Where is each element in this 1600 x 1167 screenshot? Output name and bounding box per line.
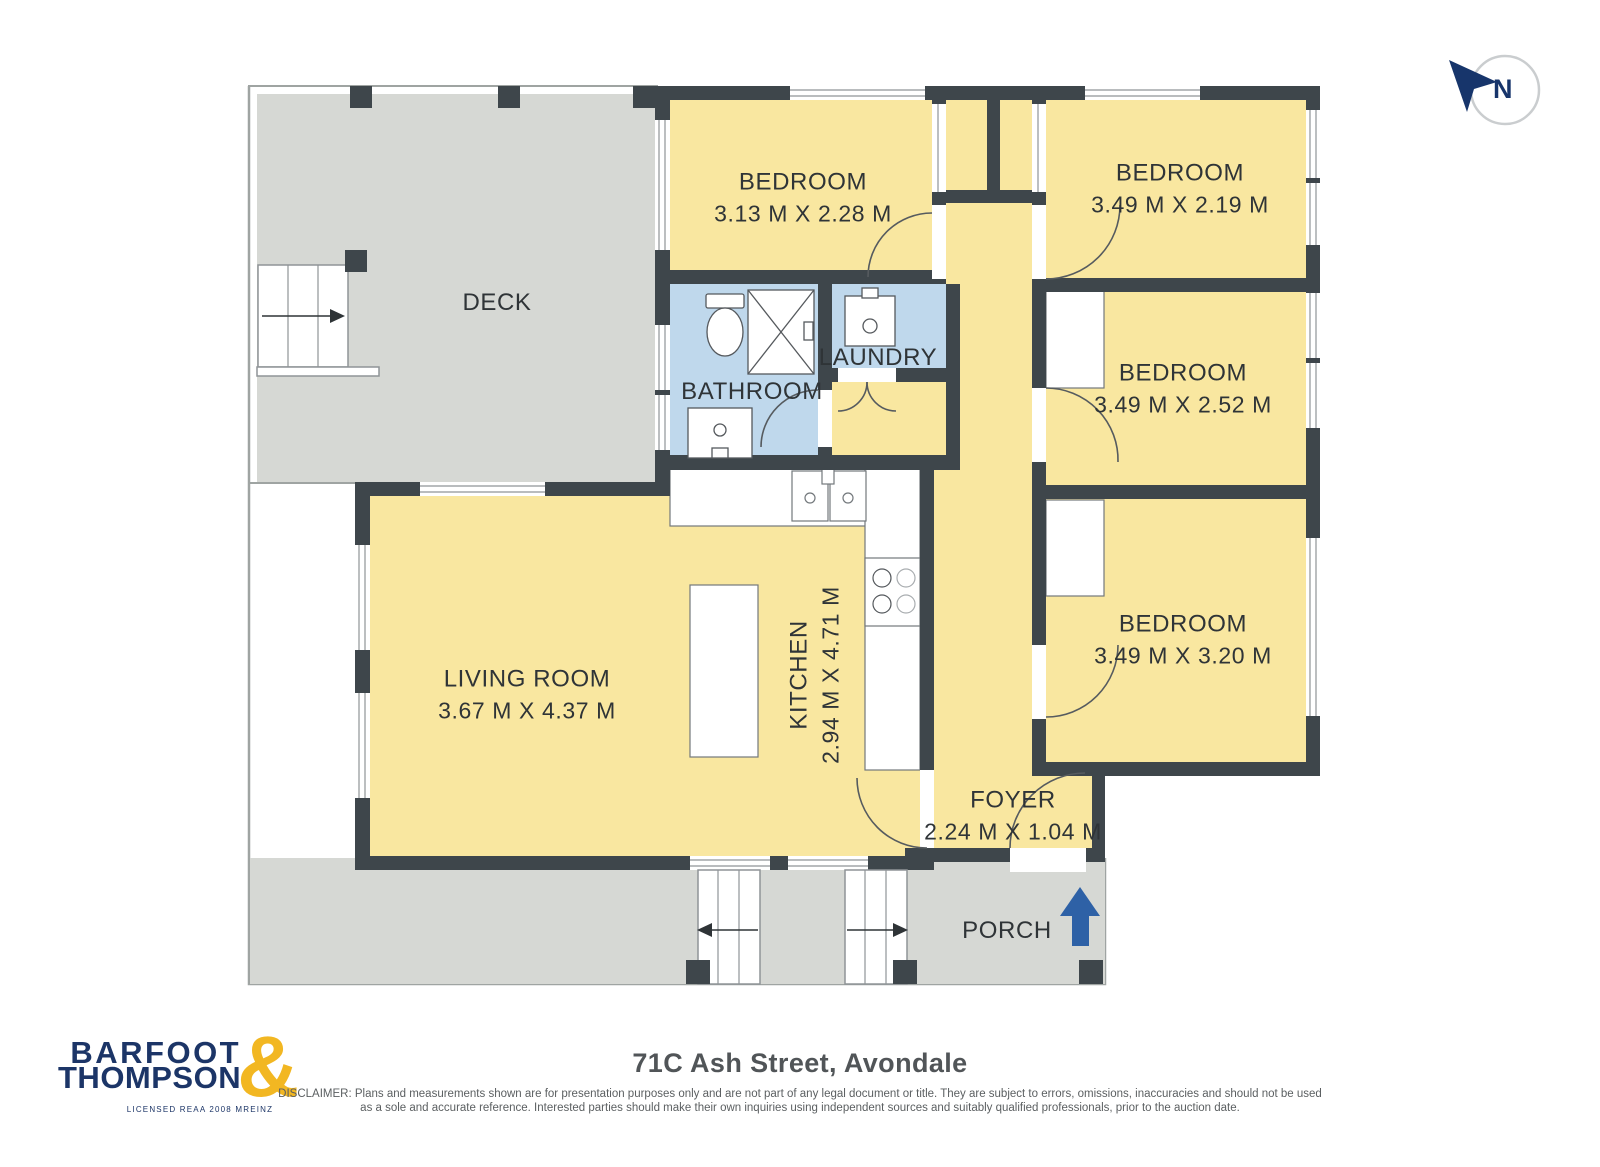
property-address-title: 71C Ash Street, Avondale: [0, 1048, 1600, 1079]
bedroom-3-door-gap: [1032, 388, 1046, 462]
window: [1306, 110, 1320, 178]
window: [790, 86, 925, 100]
deck-label: DECK: [462, 287, 531, 319]
window: [355, 693, 370, 798]
window: [655, 120, 670, 250]
bedroom-4-label: BEDROOM 3.49 M X 3.20 M: [1094, 608, 1272, 671]
disclaimer-text: DISCLAIMER: Plans and measurements shown…: [0, 1087, 1600, 1116]
foyer-label: FOYER 2.24 M X 1.04 M: [924, 784, 1102, 847]
bathroom-label: BATHROOM: [681, 376, 823, 408]
bedroom-4-wardrobe: [1046, 500, 1104, 596]
window: [1306, 183, 1320, 245]
bedroom-2-label: BEDROOM 3.49 M X 2.19 M: [1091, 157, 1269, 220]
window: [655, 325, 670, 390]
window: [655, 395, 670, 450]
kitchen-island: [690, 585, 758, 757]
bathroom-faucet-icon: [712, 448, 728, 458]
laundry-fixtures: [845, 288, 895, 346]
kitchen-label: KITCHEN 2.94 M X 4.71 M: [783, 586, 846, 764]
laundry-label: LAUNDRY: [819, 342, 937, 374]
bedroom-3-label: BEDROOM 3.49 M X 2.52 M: [1094, 357, 1272, 420]
stove: [865, 558, 920, 626]
window: [1306, 538, 1320, 716]
porch-label: PORCH: [962, 915, 1052, 947]
toilet-bowl: [707, 308, 743, 356]
living-room-label: LIVING ROOM 3.67 M X 4.37 M: [438, 663, 616, 726]
sliding-door: [690, 856, 770, 870]
compass-north-letter: N: [1493, 74, 1513, 105]
closet-door: [932, 104, 946, 192]
sliding-door: [788, 856, 868, 870]
front-door-threshold: [1010, 862, 1086, 872]
bedroom-1-door-gap: [932, 205, 946, 279]
bedroom-4-door-gap: [1032, 645, 1046, 719]
shower-handle: [804, 322, 813, 340]
toilet-tank: [706, 294, 744, 308]
closet-door: [1032, 104, 1046, 192]
window: [1306, 363, 1320, 428]
window: [355, 545, 370, 650]
deck-door: [420, 482, 545, 496]
disclaimer-line-2: as a sole and accurate reference. Intere…: [0, 1101, 1600, 1115]
disclaimer-line-1: DISCLAIMER: Plans and measurements shown…: [0, 1087, 1600, 1101]
floor-plan-page: DECK BEDROOM 3.13 M X 2.28 M BEDROOM 3.4…: [0, 0, 1600, 1167]
bedroom-1-label: BEDROOM 3.13 M X 2.28 M: [714, 166, 892, 229]
window: [1306, 293, 1320, 358]
laundry-faucet-icon: [862, 288, 878, 298]
window: [1085, 86, 1200, 100]
bedroom-2-door-gap: [1032, 205, 1046, 279]
front-door-gap: [1010, 848, 1086, 862]
